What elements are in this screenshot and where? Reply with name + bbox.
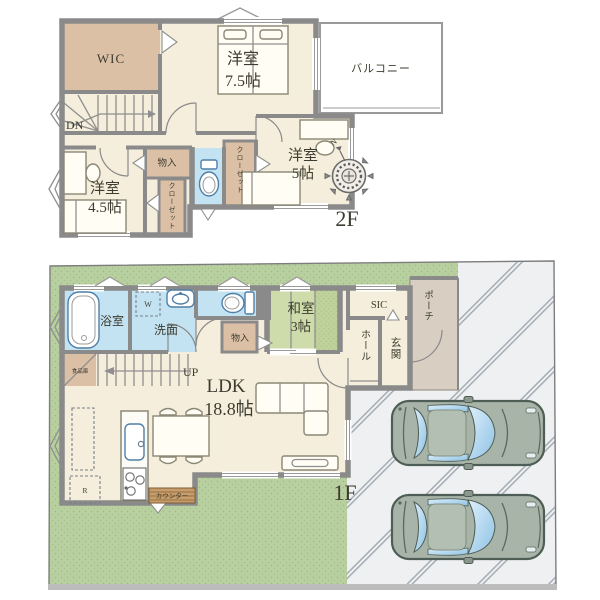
pantry-label: 食品庫 [72, 367, 89, 375]
hall-label: ホール [359, 329, 371, 362]
tatami-name: 和室 [288, 300, 315, 316]
tatami-size: 3帖 [291, 319, 311, 334]
floor2-plan: WIC 洋室 7.5帖 バルコニー DN 洋室 4.5帖 物入 クローゼット ク… [49, 8, 442, 239]
balcony-label: バルコニー [351, 62, 411, 75]
porch-label: ポーチ [422, 290, 434, 322]
bedroom75-size: 7.5帖 [225, 72, 261, 90]
bedroom5-size: 5帖 [292, 165, 315, 182]
floorplan-image: WIC 洋室 7.5帖 バルコニー DN 洋室 4.5帖 物入 クローゼット ク… [0, 0, 600, 600]
tv-board [282, 456, 338, 470]
dining-table [153, 409, 209, 464]
toilet-2f-icon [200, 160, 219, 196]
road-edge [48, 584, 557, 590]
up-label: UP [183, 365, 199, 379]
closet-left-label: クローゼット [168, 182, 176, 230]
washroom-label: 洗面 [154, 323, 178, 337]
closet-right-label: クローゼット [236, 146, 244, 194]
floor1-label: 1F [333, 480, 356, 505]
ldk-size: 18.8帖 [204, 399, 254, 419]
porch-area [410, 278, 458, 390]
toilet-1f-icon [222, 292, 254, 314]
bath-label: 浴室 [100, 313, 124, 328]
entrance-label: 玄関 [390, 336, 401, 360]
storage2f-label: 物入 [157, 157, 177, 169]
ldk-name: LDK [206, 376, 245, 397]
floorplan-svg: WIC 洋室 7.5帖 バルコニー DN 洋室 4.5帖 物入 クローゼット ク… [0, 0, 600, 600]
bathtub-icon [68, 292, 99, 348]
fridge-label: R [82, 486, 87, 495]
bedroom5-name: 洋室 [288, 147, 318, 164]
sink-icon [167, 290, 194, 307]
wic-label: WIC [97, 51, 125, 66]
counter-label: カウンター [156, 491, 189, 500]
tatami-strip [315, 288, 340, 352]
floor2-label: 2F [335, 206, 358, 231]
bedroom45-size: 4.5帖 [88, 199, 122, 216]
bedroom75-name: 洋室 [227, 50, 259, 68]
storage1f-label: 物入 [231, 332, 249, 343]
dn-label: DN [66, 118, 84, 132]
washer-label: W [144, 300, 152, 309]
bedroom45-name: 洋室 [90, 180, 120, 197]
sic-label: SIC [371, 300, 387, 311]
kitchen-counter [121, 411, 148, 501]
